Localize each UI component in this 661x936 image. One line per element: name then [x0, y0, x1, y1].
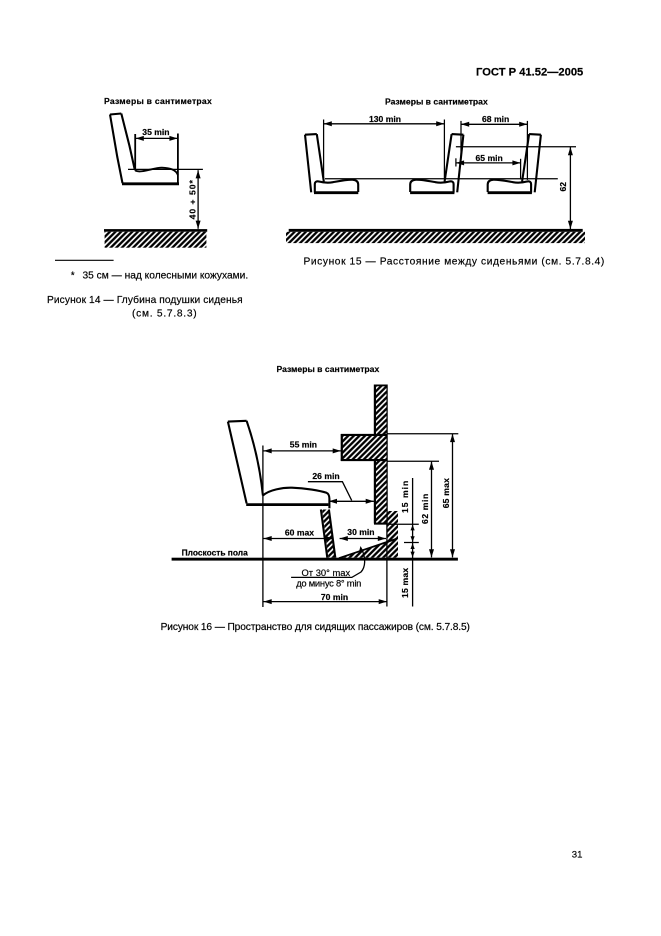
- svg-text:26 min: 26 min: [312, 471, 339, 481]
- svg-text:Плоскость пола: Плоскость пола: [182, 547, 248, 557]
- svg-text:55 min: 55 min: [290, 439, 317, 449]
- svg-text:68 min: 68 min: [482, 114, 509, 124]
- svg-text:35 min: 35 min: [142, 127, 169, 137]
- svg-text:60 max: 60 max: [285, 527, 314, 537]
- svg-text:65 min: 65 min: [476, 153, 503, 163]
- svg-text:до минус 8° min: до минус 8° min: [296, 577, 361, 588]
- svg-text:Размеры в сантиметрах: Размеры в сантиметрах: [385, 96, 488, 106]
- svg-text:31: 31: [572, 850, 583, 861]
- svg-text:65 max: 65 max: [441, 478, 451, 508]
- svg-text:30 min: 30 min: [347, 527, 374, 537]
- svg-text:Рисунок 15 — Расстояние между: Рисунок 15 — Расстояние между сиденьями …: [304, 257, 605, 268]
- svg-text:Рисунок 14 — Глубина подушки с: Рисунок 14 — Глубина подушки сиденья: [47, 294, 243, 306]
- svg-text:40 + 50*: 40 + 50*: [188, 179, 198, 219]
- svg-text:ГОСТ Р 41.52—2005: ГОСТ Р 41.52—2005: [476, 67, 583, 79]
- svg-text:70 min: 70 min: [321, 592, 348, 602]
- svg-text:*35 см — над колесными кожухам: *35 см — над колесными кожухами.: [71, 270, 248, 281]
- svg-text:Рисунок 16 — Пространство для: Рисунок 16 — Пространство для сидящих па…: [161, 622, 470, 633]
- svg-text:Размеры в сантиметрах: Размеры в сантиметрах: [277, 364, 380, 374]
- svg-text:От 30° max: От 30° max: [302, 567, 351, 578]
- svg-text:130 min: 130 min: [369, 114, 401, 124]
- svg-text:Размеры в сантиметрах: Размеры в сантиметрах: [104, 96, 212, 106]
- svg-text:62 min: 62 min: [420, 493, 430, 524]
- svg-text:15 min: 15 min: [400, 480, 410, 513]
- svg-text:62: 62: [558, 182, 568, 192]
- svg-text:(см. 5.7.8.3): (см. 5.7.8.3): [132, 309, 197, 320]
- svg-text:15 max: 15 max: [400, 568, 410, 598]
